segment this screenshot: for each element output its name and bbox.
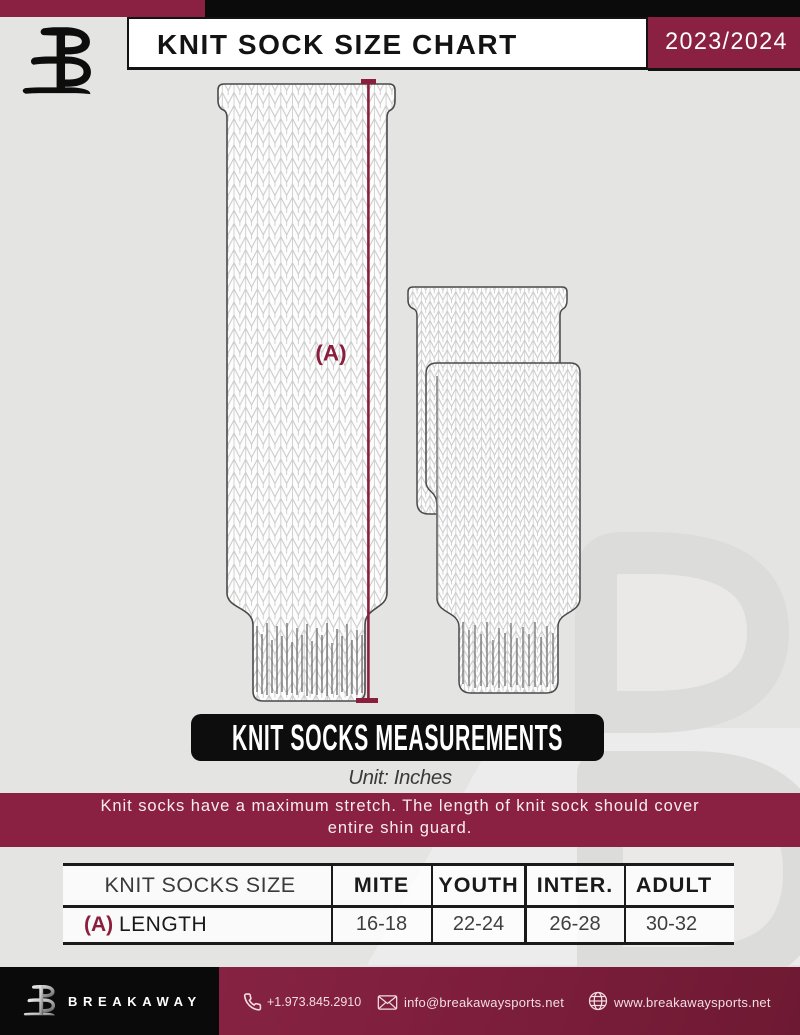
svg-text:(A): (A) — [315, 341, 346, 366]
